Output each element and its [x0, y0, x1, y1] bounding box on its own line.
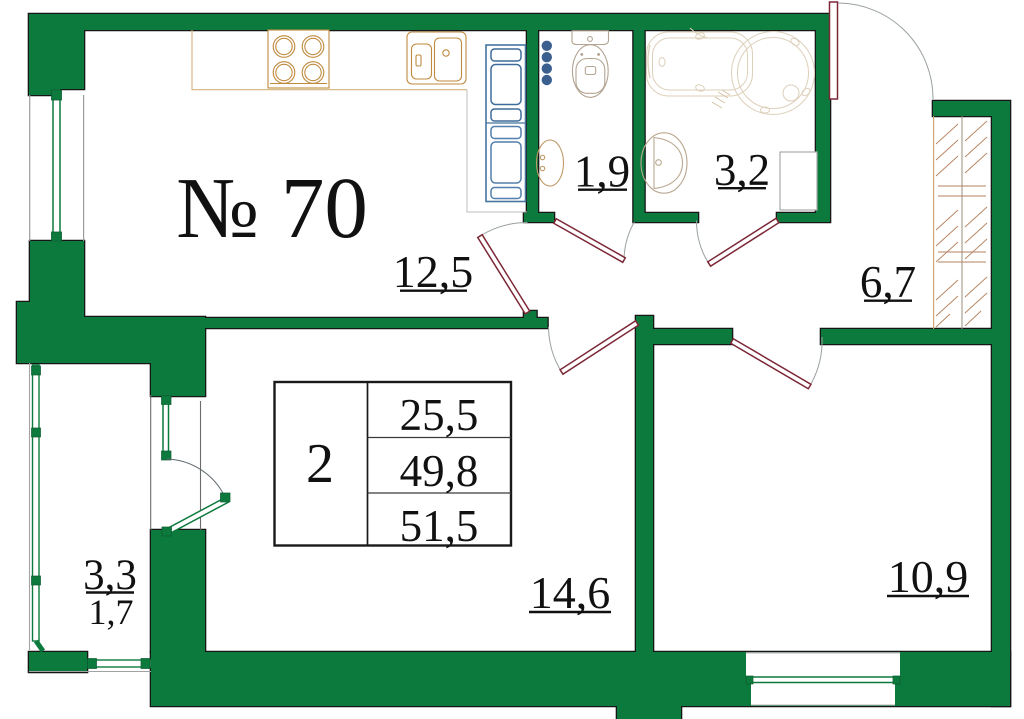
svg-text:№ 70: № 70 — [176, 159, 368, 256]
svg-text:10,9: 10,9 — [888, 551, 969, 602]
svg-text:49,8: 49,8 — [400, 446, 479, 496]
svg-text:25,5: 25,5 — [400, 390, 479, 440]
svg-text:1,7: 1,7 — [89, 592, 134, 632]
svg-text:12,5: 12,5 — [393, 246, 474, 297]
svg-text:51,5: 51,5 — [400, 501, 479, 551]
svg-text:14,6: 14,6 — [530, 567, 611, 618]
svg-text:2: 2 — [306, 433, 334, 495]
